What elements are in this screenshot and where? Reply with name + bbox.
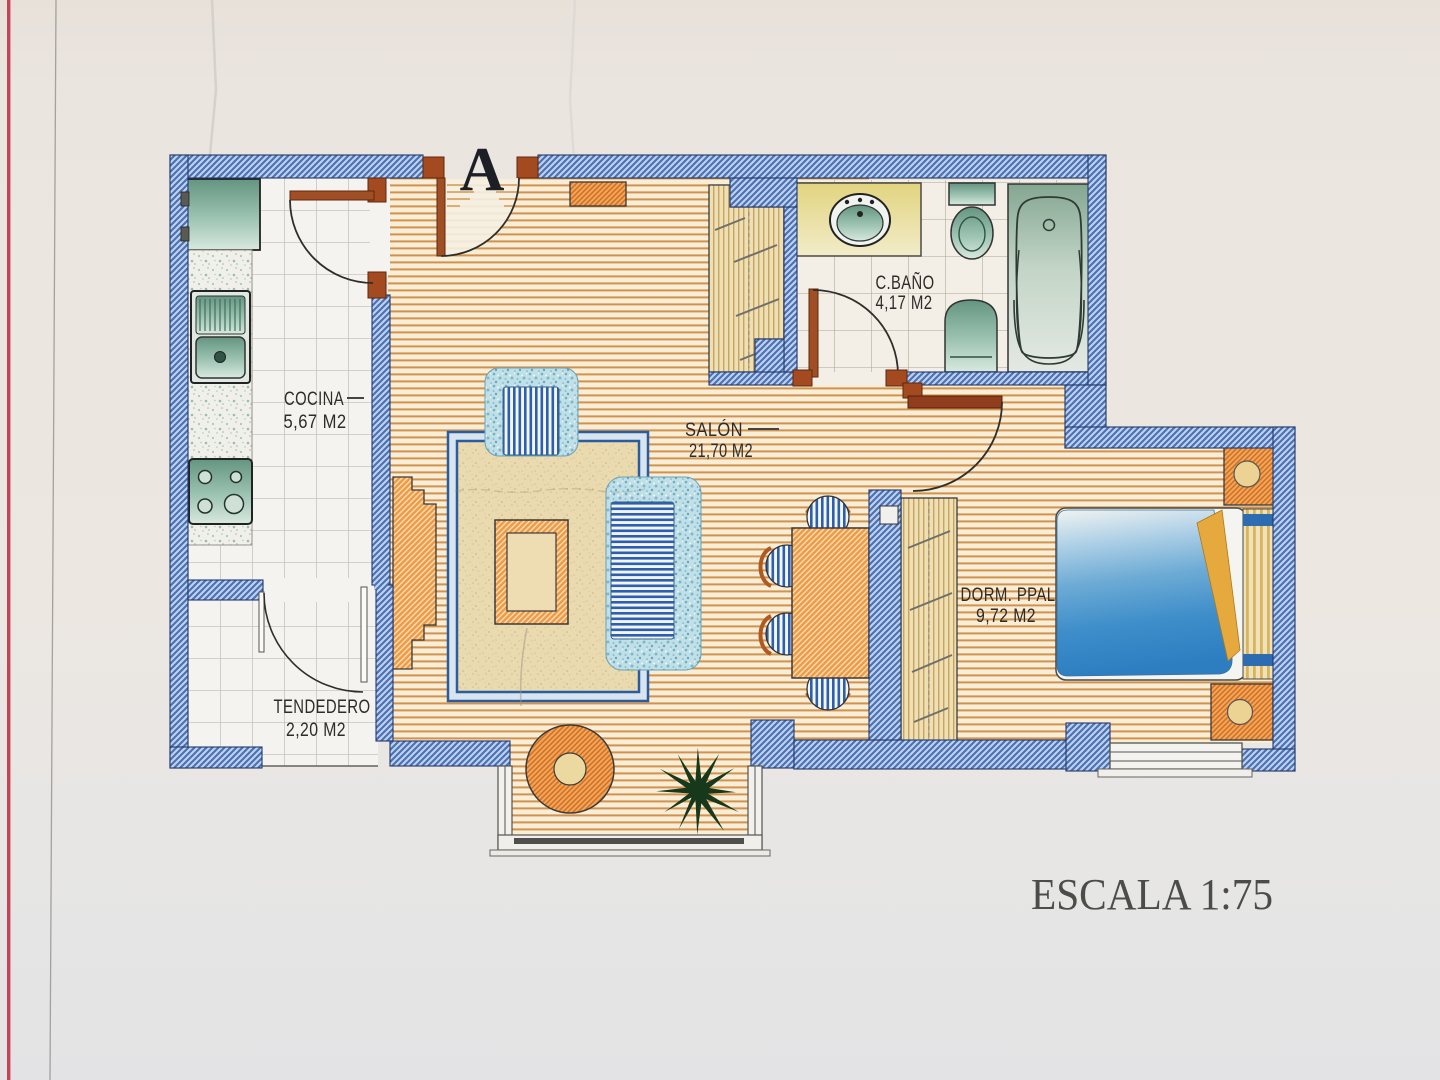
svg-text:5,67 M2: 5,67 M2 (284, 412, 347, 433)
svg-text:9,72 M2: 9,72 M2 (976, 606, 1036, 627)
svg-text:2,20 M2: 2,20 M2 (286, 720, 346, 741)
svg-text:4,17 M2: 4,17 M2 (876, 293, 933, 314)
svg-text:SALÓN: SALÓN (685, 419, 743, 441)
svg-text:C.BAÑO: C.BAÑO (876, 272, 935, 294)
svg-text:COCINA: COCINA (284, 389, 344, 410)
svg-text:21,70 M2: 21,70 M2 (689, 441, 753, 462)
svg-text:DORM. PPAL: DORM. PPAL (961, 585, 1056, 606)
svg-text:TENDEDERO: TENDEDERO (274, 697, 371, 718)
svg-text:A: A (460, 136, 505, 204)
svg-text:ESCALA 1:75: ESCALA 1:75 (1031, 870, 1273, 919)
